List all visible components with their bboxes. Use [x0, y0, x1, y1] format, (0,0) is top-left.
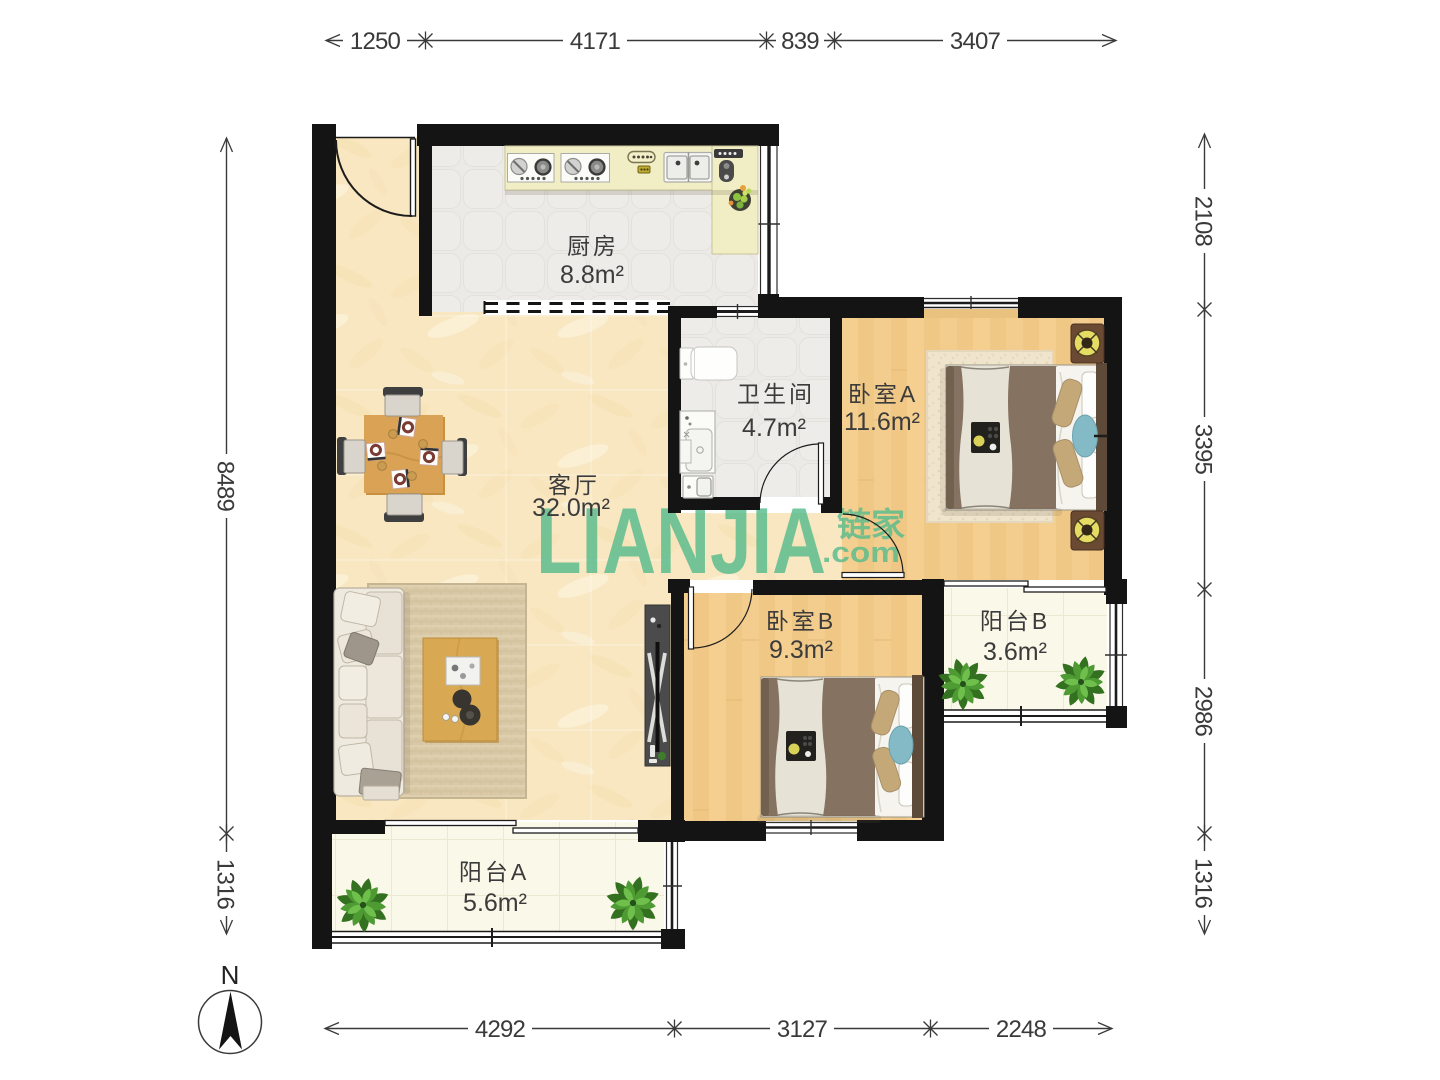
svg-text:8.8m²: 8.8m²	[560, 261, 624, 289]
svg-text:卫生间: 卫生间	[737, 381, 815, 407]
svg-text:9.3m²: 9.3m²	[769, 636, 833, 664]
svg-text:卧室A: 卧室A	[848, 381, 918, 407]
svg-text:阳台B: 阳台B	[980, 608, 1050, 634]
svg-text:.com: .com	[822, 537, 900, 569]
svg-text:32.0m²: 32.0m²	[532, 494, 610, 522]
svg-text:厨房: 厨房	[567, 233, 619, 259]
svg-text:N: N	[221, 960, 240, 990]
svg-text:8489: 8489	[212, 461, 239, 512]
svg-text:3127: 3127	[777, 1016, 828, 1043]
svg-text:2986: 2986	[1190, 686, 1217, 737]
svg-text:3395: 3395	[1190, 424, 1217, 475]
svg-text:2248: 2248	[996, 1016, 1047, 1043]
svg-text:1316: 1316	[1190, 858, 1217, 909]
svg-text:卧室B: 卧室B	[766, 608, 836, 634]
svg-text:阳台A: 阳台A	[459, 859, 529, 885]
svg-text:839: 839	[781, 28, 819, 55]
svg-text:4171: 4171	[570, 28, 621, 55]
svg-text:3407: 3407	[950, 28, 1001, 55]
svg-text:1250: 1250	[350, 28, 401, 55]
svg-text:4.7m²: 4.7m²	[742, 414, 806, 442]
svg-text:11.6m²: 11.6m²	[844, 408, 920, 436]
svg-text:1316: 1316	[212, 859, 239, 910]
svg-text:3.6m²: 3.6m²	[983, 638, 1047, 666]
svg-text:5.6m²: 5.6m²	[463, 889, 527, 917]
svg-text:2108: 2108	[1190, 196, 1217, 247]
svg-text:4292: 4292	[475, 1016, 526, 1043]
